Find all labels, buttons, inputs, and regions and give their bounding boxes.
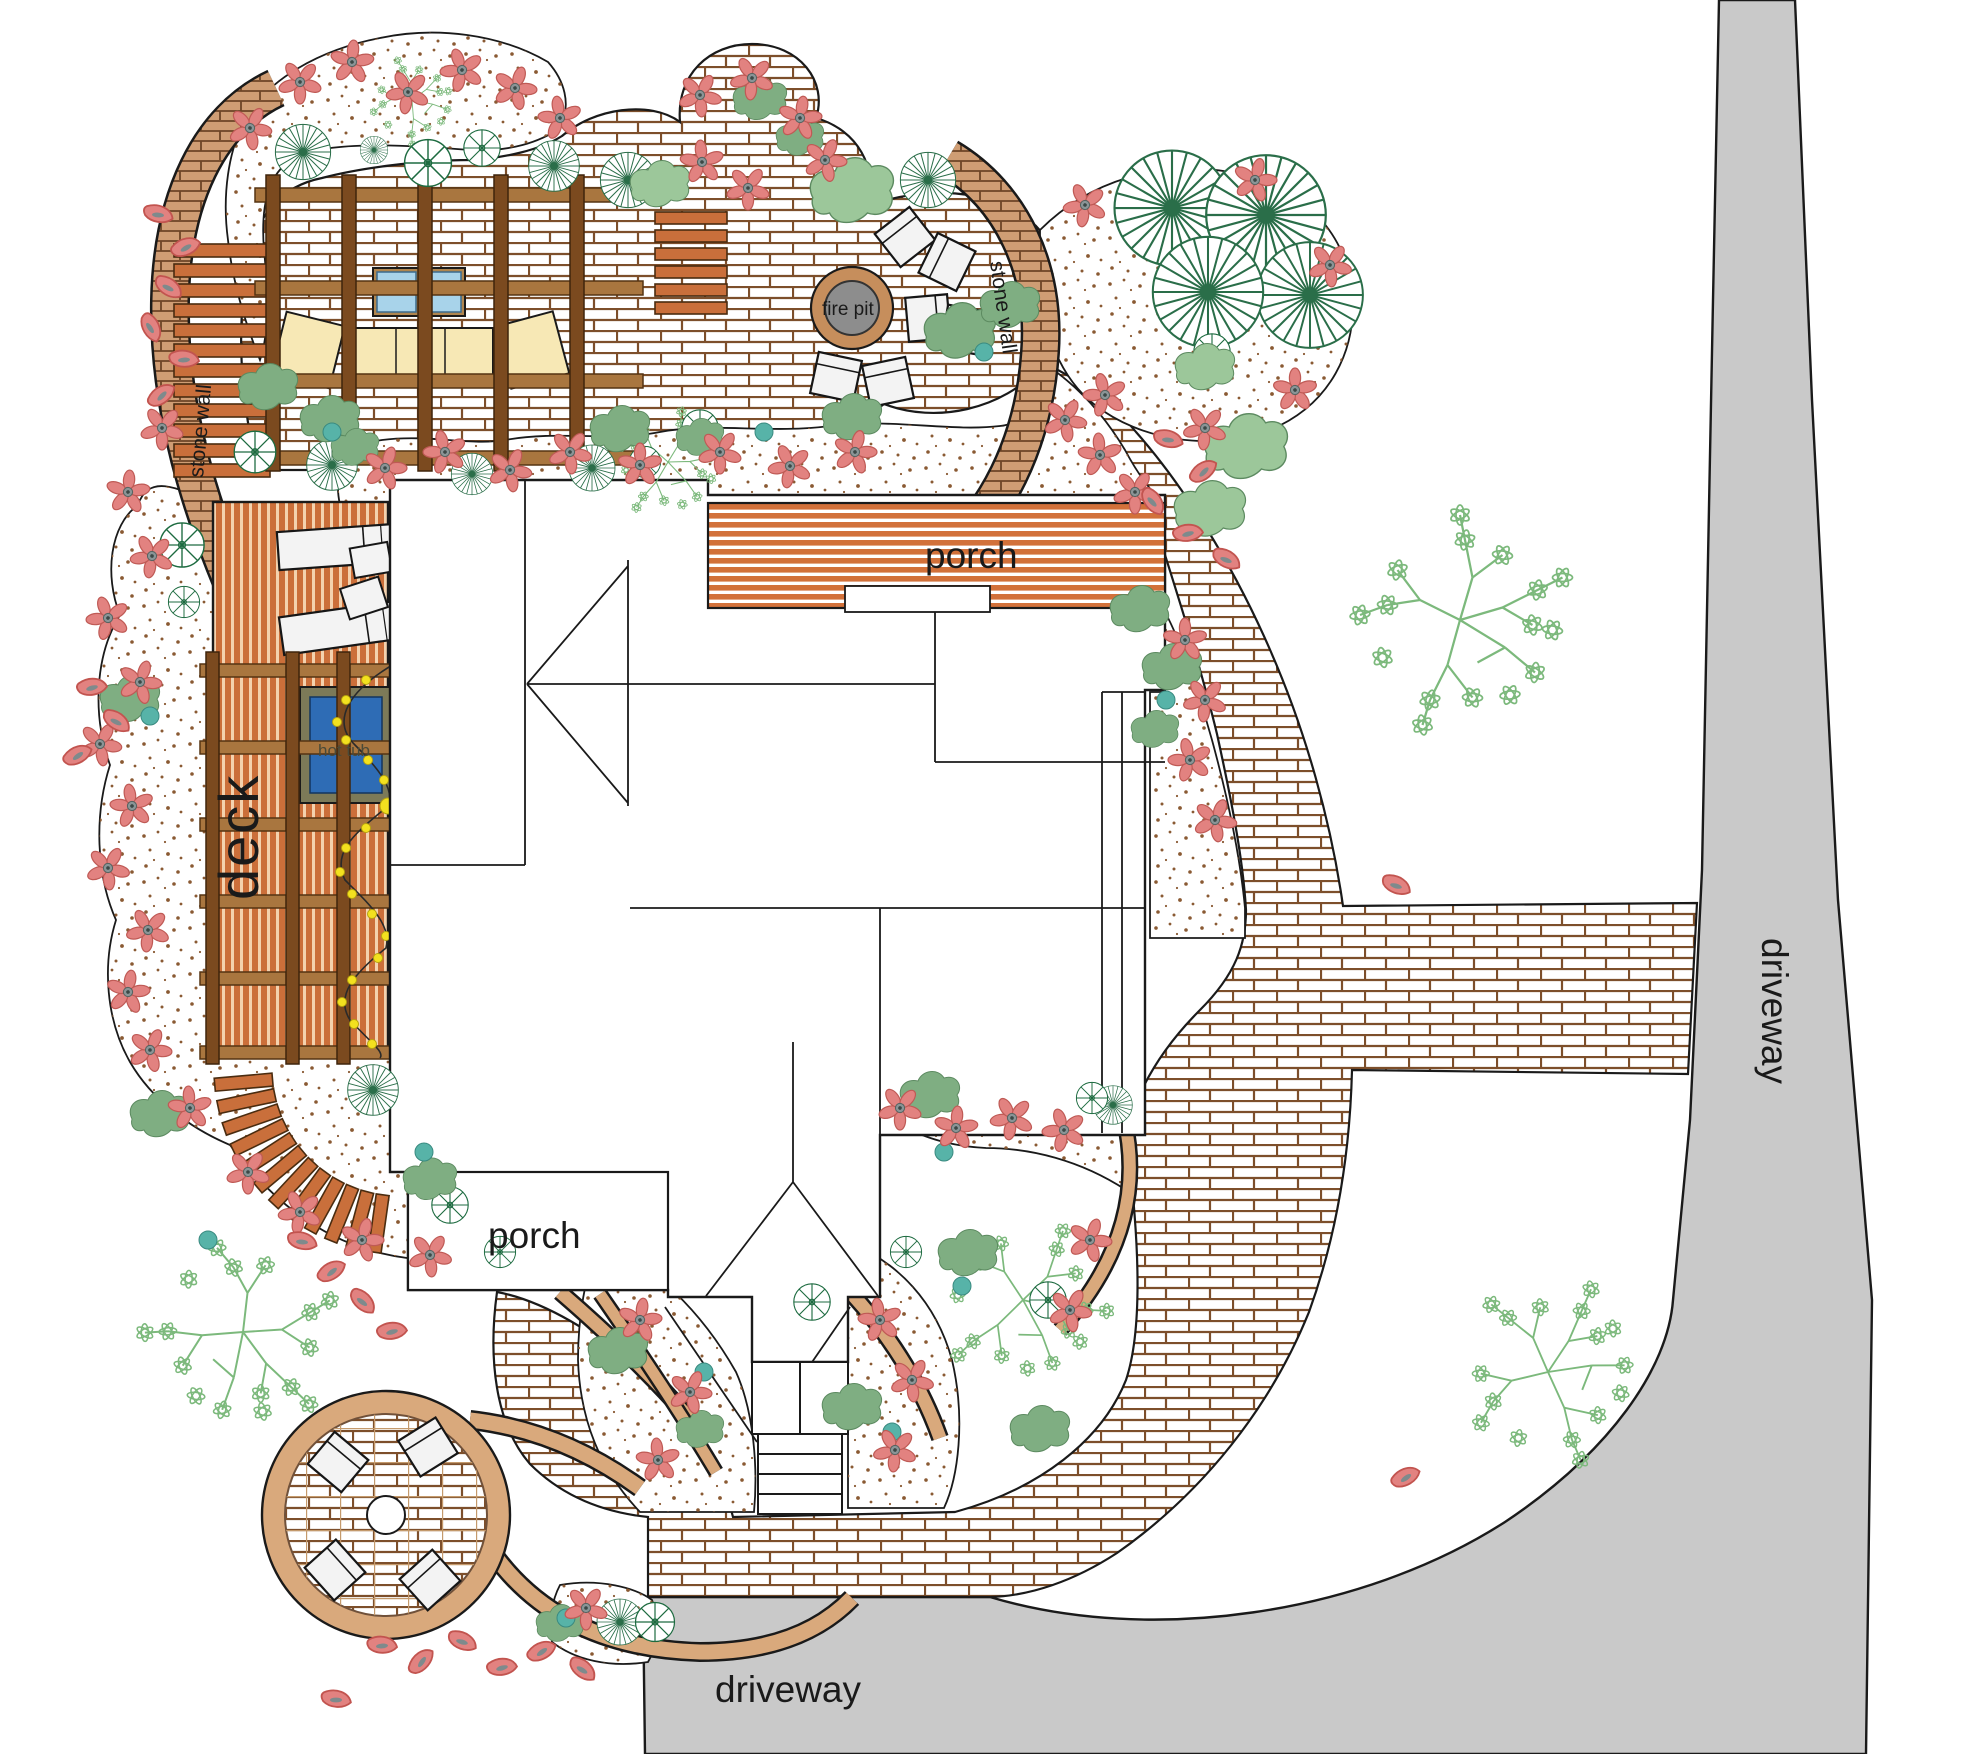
front-step: [758, 1494, 842, 1514]
conifer-shrub: [900, 152, 955, 207]
accent-plant: [755, 423, 773, 441]
shrub: [234, 431, 276, 473]
porch-landing: [845, 586, 990, 612]
label-porch-south: porch: [488, 1215, 581, 1256]
accent-plant: [141, 707, 159, 725]
front-stoop: [752, 1362, 800, 1434]
conifer-shrub: [360, 136, 388, 164]
label-fire-pit: fire pit: [822, 299, 874, 320]
shrub: [890, 1236, 921, 1267]
side-table: [350, 542, 393, 578]
shrub: [794, 1284, 830, 1320]
shrub: [636, 1603, 675, 1642]
accent-plant: [1157, 691, 1175, 709]
label-porch-north: porch: [925, 535, 1018, 576]
label-hot-tub: hot tub: [318, 741, 370, 760]
shrub: [1076, 1082, 1107, 1113]
label-driveway-south: driveway: [715, 1669, 861, 1710]
front-entry: [752, 1362, 848, 1514]
site-plan-drawing: porch porch deck hot tub fire pit stone …: [0, 0, 1964, 1754]
accent-plant: [975, 343, 993, 361]
front-step: [758, 1434, 842, 1454]
conifer-tree: [1257, 242, 1363, 348]
landscape-plan-canvas: porch porch deck hot tub fire pit stone …: [0, 0, 1964, 1754]
accent-plant: [199, 1231, 217, 1249]
shrub: [464, 130, 500, 166]
label-deck: deck: [207, 774, 270, 900]
patio-table: [367, 1496, 405, 1534]
conifer-shrub: [348, 1065, 399, 1116]
conifer-shrub: [275, 124, 330, 179]
accent-plant: [323, 423, 341, 441]
accent-plant: [953, 1277, 971, 1295]
front-step: [758, 1454, 842, 1474]
conifer-tree: [1153, 237, 1263, 347]
conifer-shrub: [529, 141, 580, 192]
shrub: [168, 586, 199, 617]
accent-plant: [415, 1143, 433, 1161]
front-step: [758, 1474, 842, 1494]
label-driveway-east: driveway: [1754, 938, 1795, 1084]
shrub: [405, 140, 452, 187]
